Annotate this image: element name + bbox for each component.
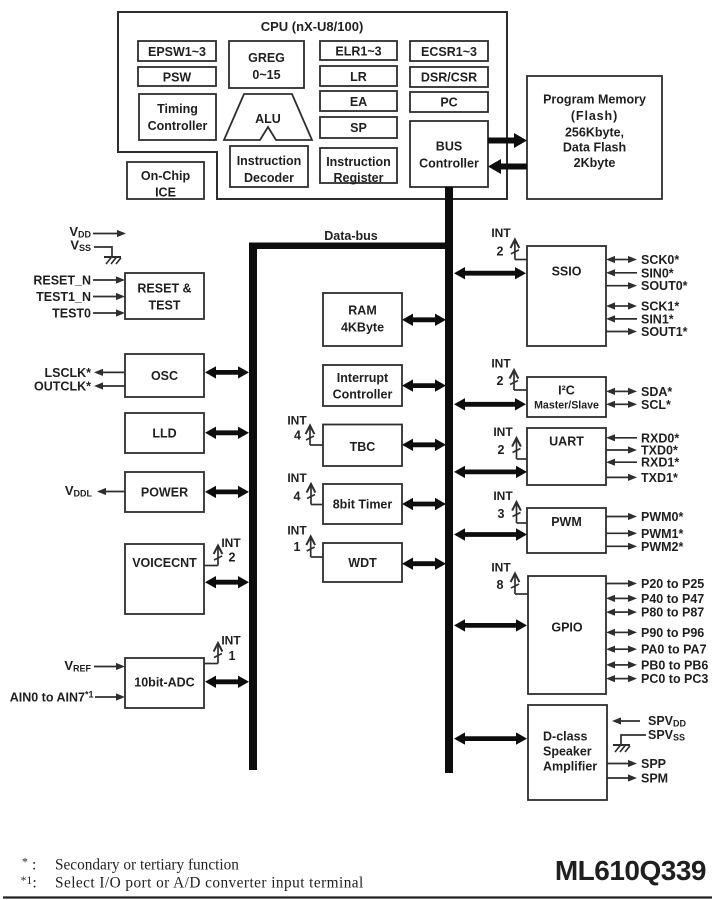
svg-text:SCL*: SCL* bbox=[641, 398, 671, 412]
svg-text:TEST: TEST bbox=[149, 299, 181, 313]
svg-text:Secondary or tertiary function: Secondary or tertiary function bbox=[55, 857, 239, 874]
svg-text:VDDL: VDDL bbox=[65, 483, 93, 499]
svg-text:0~15: 0~15 bbox=[252, 68, 280, 82]
svg-text:Program Memory: Program Memory bbox=[543, 93, 646, 107]
svg-text:INT: INT bbox=[491, 226, 511, 240]
svg-text::: : bbox=[32, 857, 36, 874]
svg-text:SOUT0*: SOUT0* bbox=[641, 279, 688, 293]
svg-text:VOICECNT: VOICECNT bbox=[132, 556, 197, 570]
svg-text:PWM2*: PWM2* bbox=[641, 540, 684, 554]
svg-text:(Flash): (Flash) bbox=[571, 109, 618, 123]
svg-text:EA: EA bbox=[350, 95, 367, 109]
svg-text:TXD1*: TXD1* bbox=[641, 471, 678, 485]
svg-text:Data Flash: Data Flash bbox=[563, 141, 626, 155]
svg-text:POWER: POWER bbox=[141, 486, 188, 500]
svg-text:2Kbyte: 2Kbyte bbox=[574, 156, 616, 170]
svg-text:3: 3 bbox=[498, 507, 505, 521]
svg-text:SIN0*: SIN0* bbox=[641, 266, 674, 280]
svg-text:PA0 to PA7: PA0 to PA7 bbox=[641, 643, 707, 657]
svg-text:Controller: Controller bbox=[333, 388, 393, 402]
svg-text:INT: INT bbox=[493, 489, 513, 503]
svg-text::: : bbox=[33, 875, 37, 892]
svg-text:Amplifier: Amplifier bbox=[543, 760, 597, 774]
svg-text:PC0 to PC3: PC0 to PC3 bbox=[641, 672, 708, 686]
svg-text:PC: PC bbox=[440, 96, 457, 110]
svg-text:TBC: TBC bbox=[350, 440, 376, 454]
svg-text:PWM0*: PWM0* bbox=[641, 510, 684, 524]
svg-text:2: 2 bbox=[497, 374, 504, 388]
svg-text:CPU (nX-U8/100): CPU (nX-U8/100) bbox=[261, 19, 364, 34]
svg-text:1: 1 bbox=[229, 649, 236, 663]
svg-text:SP: SP bbox=[350, 121, 367, 135]
svg-text:INT: INT bbox=[493, 425, 513, 439]
svg-text:Instruction: Instruction bbox=[326, 155, 391, 169]
svg-text:SOUT1*: SOUT1* bbox=[641, 325, 688, 339]
svg-text:INT: INT bbox=[287, 471, 307, 485]
svg-text:4KByte: 4KByte bbox=[341, 321, 384, 335]
svg-text:VSS: VSS bbox=[70, 238, 91, 254]
svg-text:GREG: GREG bbox=[248, 51, 285, 65]
svg-text:INT: INT bbox=[287, 524, 307, 538]
svg-text:I²C: I²C bbox=[558, 384, 575, 398]
svg-text:WDT: WDT bbox=[348, 556, 377, 570]
svg-text:TEST0: TEST0 bbox=[52, 307, 91, 321]
svg-text:GPIO: GPIO bbox=[551, 621, 583, 635]
svg-text:Speaker: Speaker bbox=[543, 745, 592, 759]
svg-text:ICE: ICE bbox=[155, 186, 176, 200]
svg-text:Decoder: Decoder bbox=[244, 171, 294, 185]
svg-text:P20 to P25: P20 to P25 bbox=[641, 577, 704, 591]
svg-text:RESET &: RESET & bbox=[137, 282, 191, 296]
svg-text:AIN0 to AIN7*1: AIN0 to AIN7*1 bbox=[10, 690, 94, 705]
svg-text:VREF: VREF bbox=[64, 658, 91, 674]
svg-text:256Kbyte,: 256Kbyte, bbox=[565, 126, 624, 140]
svg-text:LR: LR bbox=[350, 70, 367, 84]
svg-text:UART: UART bbox=[549, 435, 584, 449]
svg-text:Timing: Timing bbox=[157, 102, 198, 116]
svg-text:8: 8 bbox=[497, 578, 504, 592]
svg-text:SDA*: SDA* bbox=[641, 385, 672, 399]
svg-text:4: 4 bbox=[294, 490, 301, 504]
svg-text:INT: INT bbox=[221, 536, 241, 550]
svg-text:INT: INT bbox=[491, 357, 511, 371]
svg-text:SSIO: SSIO bbox=[552, 265, 582, 279]
svg-text:*1: *1 bbox=[21, 875, 33, 887]
svg-text:SPVDD: SPVDD bbox=[648, 714, 687, 729]
svg-text:LLD: LLD bbox=[152, 427, 176, 441]
svg-text:OUTCLK*: OUTCLK* bbox=[34, 380, 91, 394]
svg-text:DSR/CSR: DSR/CSR bbox=[421, 71, 477, 85]
svg-text:RESET_N: RESET_N bbox=[33, 274, 91, 288]
svg-text:PSW: PSW bbox=[163, 71, 192, 85]
svg-text:Data-bus: Data-bus bbox=[324, 229, 378, 243]
svg-text:*: * bbox=[22, 855, 28, 869]
svg-text:PWM: PWM bbox=[551, 515, 582, 529]
svg-text:4: 4 bbox=[294, 429, 301, 443]
svg-text:PWM1*: PWM1* bbox=[641, 527, 684, 541]
svg-text:INT: INT bbox=[491, 561, 511, 575]
svg-text:2: 2 bbox=[229, 551, 236, 565]
svg-text:INT: INT bbox=[221, 634, 241, 648]
svg-text:1: 1 bbox=[294, 540, 301, 554]
svg-text:SPVSS: SPVSS bbox=[648, 728, 685, 743]
svg-text:Instruction: Instruction bbox=[237, 154, 302, 168]
svg-text:ML610Q339: ML610Q339 bbox=[555, 855, 706, 886]
svg-text:2: 2 bbox=[497, 245, 504, 259]
svg-text:ELR1~3: ELR1~3 bbox=[335, 45, 381, 59]
svg-text:PB0 to PB6: PB0 to PB6 bbox=[641, 658, 708, 672]
svg-text:P90 to P96: P90 to P96 bbox=[641, 626, 704, 640]
svg-text:SCK1*: SCK1* bbox=[641, 300, 679, 314]
svg-text:Controller: Controller bbox=[148, 119, 208, 133]
svg-text:BUS: BUS bbox=[436, 140, 462, 154]
svg-text:SCK0*: SCK0* bbox=[641, 253, 679, 267]
svg-text:Select I/O port or A/D convert: Select I/O port or A/D converter input t… bbox=[55, 875, 364, 892]
svg-text:EPSW1~3: EPSW1~3 bbox=[148, 45, 206, 59]
svg-text:LSCLK*: LSCLK* bbox=[44, 366, 91, 380]
svg-text:Interrupt: Interrupt bbox=[337, 371, 389, 385]
svg-text:INT: INT bbox=[287, 414, 307, 428]
svg-text:10bit-ADC: 10bit-ADC bbox=[134, 676, 194, 690]
svg-text:Master/Slave: Master/Slave bbox=[534, 400, 599, 412]
svg-text:P40 to P47: P40 to P47 bbox=[641, 592, 704, 606]
svg-text:ALU: ALU bbox=[255, 112, 281, 126]
svg-text:ECSR1~3: ECSR1~3 bbox=[421, 45, 477, 59]
svg-text:RAM: RAM bbox=[348, 304, 376, 318]
svg-text:P80 to P87: P80 to P87 bbox=[641, 606, 704, 620]
svg-text:Register: Register bbox=[333, 171, 383, 185]
svg-text:TEST1_N: TEST1_N bbox=[36, 290, 91, 304]
svg-text:8bit Timer: 8bit Timer bbox=[333, 498, 393, 512]
svg-text:SPM: SPM bbox=[641, 772, 668, 786]
svg-text:SPP: SPP bbox=[641, 757, 666, 771]
svg-text:2: 2 bbox=[498, 443, 505, 457]
svg-text:D-class: D-class bbox=[543, 730, 588, 744]
svg-text:OSC: OSC bbox=[151, 369, 178, 383]
svg-text:RXD1*: RXD1* bbox=[641, 456, 679, 470]
svg-text:Controller: Controller bbox=[419, 157, 479, 171]
svg-text:On-Chip: On-Chip bbox=[141, 169, 191, 183]
